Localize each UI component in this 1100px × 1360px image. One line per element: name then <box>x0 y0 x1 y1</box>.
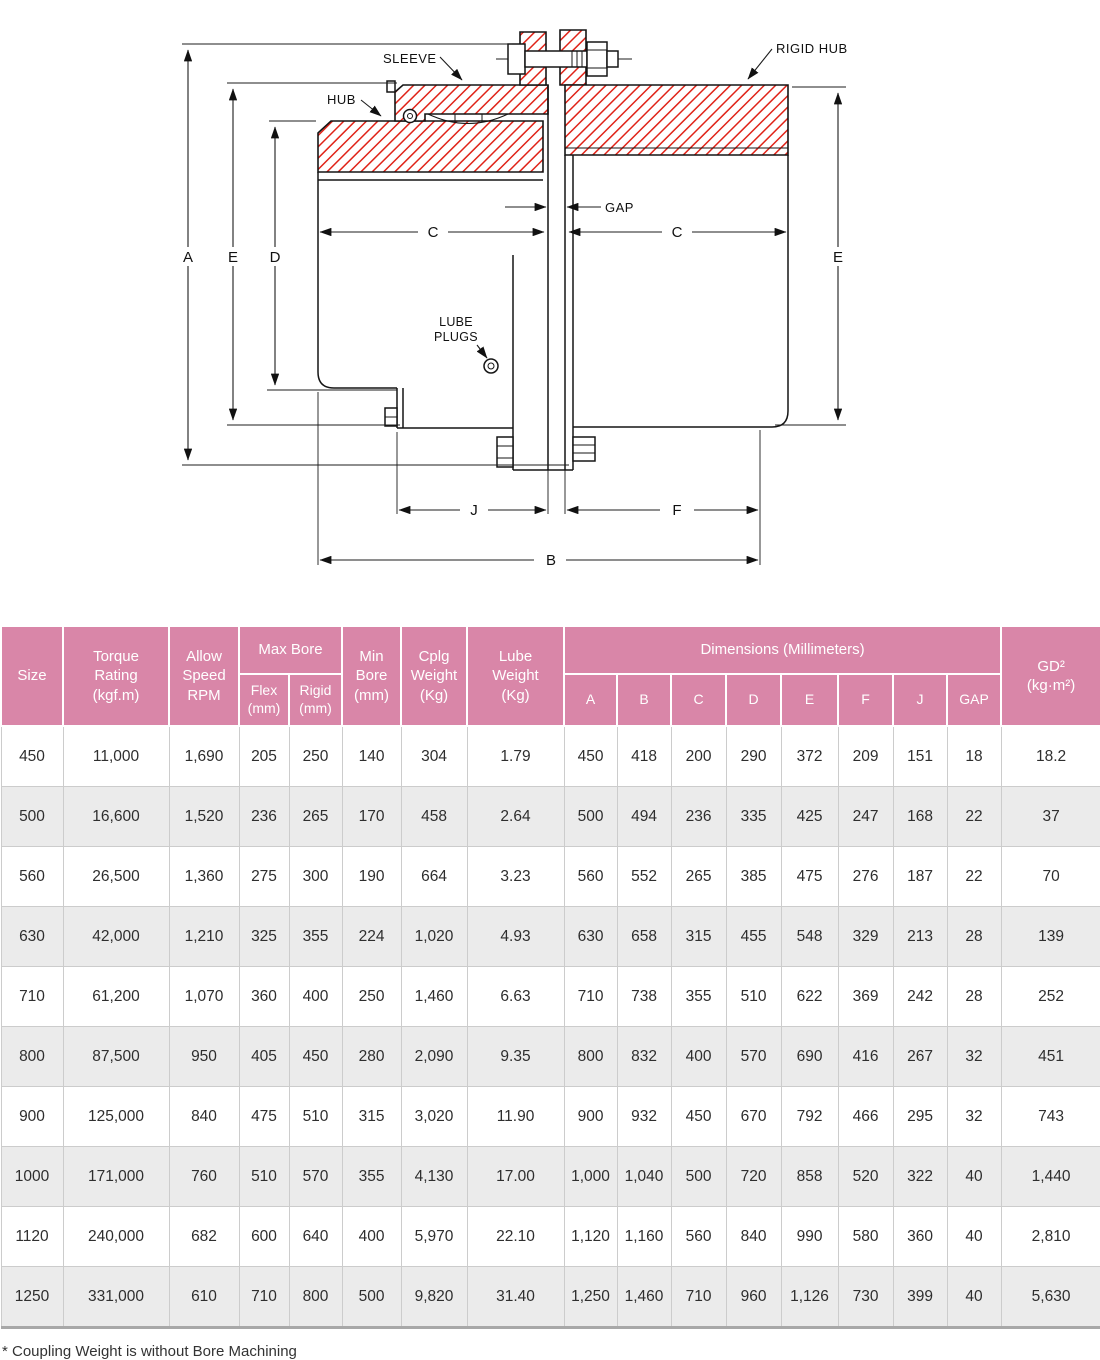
table-cell: 1,460 <box>401 967 467 1027</box>
table-cell: 510 <box>239 1147 289 1207</box>
table-cell: 252 <box>1001 967 1100 1027</box>
table-cell: 3.23 <box>467 847 564 907</box>
table-cell: 500 <box>1 787 63 847</box>
hub-label: HUB <box>327 92 356 107</box>
table-cell: 1,690 <box>169 726 239 787</box>
table-cell: 670 <box>726 1087 781 1147</box>
dim-label-c-left: C <box>428 224 439 241</box>
col-header-dim-c: C <box>671 674 726 726</box>
dim-label-d: D <box>270 249 281 266</box>
table-cell: 295 <box>893 1087 947 1147</box>
table-cell: 276 <box>838 847 893 907</box>
table-cell: 932 <box>617 1087 671 1147</box>
table-cell: 1,000 <box>564 1147 617 1207</box>
table-cell: 168 <box>893 787 947 847</box>
table-cell: 560 <box>671 1207 726 1267</box>
col-header-flex: Flex (mm) <box>239 674 289 726</box>
table-cell: 61,200 <box>63 967 169 1027</box>
table-cell: 22.10 <box>467 1207 564 1267</box>
table-cell: 171,000 <box>63 1147 169 1207</box>
table-cell: 710 <box>671 1267 726 1328</box>
table-cell: 900 <box>1 1087 63 1147</box>
table-cell: 242 <box>893 967 947 1027</box>
table-cell: 832 <box>617 1027 671 1087</box>
table-row: 1120240,0006826006404005,97022.101,1201,… <box>1 1207 1100 1267</box>
table-cell: 792 <box>781 1087 838 1147</box>
bolt-nut <box>587 42 607 76</box>
coupling-cross-section-diagram: A E D E C C J F B SLEEVE HUB RIGID HUB G… <box>0 0 1100 615</box>
col-header-torque: Torque Rating (kgf.m) <box>63 626 169 726</box>
table-cell: 18.2 <box>1001 726 1100 787</box>
table-cell: 1120 <box>1 1207 63 1267</box>
table-cell: 475 <box>781 847 838 907</box>
table-cell: 1,040 <box>617 1147 671 1207</box>
table-cell: 630 <box>564 907 617 967</box>
table-cell: 900 <box>564 1087 617 1147</box>
table-cell: 800 <box>289 1267 342 1328</box>
table-cell: 1,360 <box>169 847 239 907</box>
table-cell: 710 <box>564 967 617 1027</box>
table-cell: 1,440 <box>1001 1147 1100 1207</box>
sleeve-label: SLEEVE <box>383 51 437 66</box>
table-cell: 329 <box>838 907 893 967</box>
table-cell: 32 <box>947 1087 1001 1147</box>
table-cell: 548 <box>781 907 838 967</box>
table-cell: 200 <box>671 726 726 787</box>
table-cell: 720 <box>726 1147 781 1207</box>
table-cell: 1250 <box>1 1267 63 1328</box>
table-cell: 6.63 <box>467 967 564 1027</box>
table-row: 63042,0001,2103253552241,0204.9363065831… <box>1 907 1100 967</box>
table-cell: 1.79 <box>467 726 564 787</box>
dim-label-e-left: E <box>228 249 238 266</box>
table-cell: 800 <box>1 1027 63 1087</box>
col-header-dim-f: F <box>838 674 893 726</box>
table-cell: 738 <box>617 967 671 1027</box>
table-cell: 743 <box>1001 1087 1100 1147</box>
table-cell: 26,500 <box>63 847 169 907</box>
table-cell: 187 <box>893 847 947 907</box>
table-cell: 140 <box>342 726 401 787</box>
table-cell: 139 <box>1001 907 1100 967</box>
table-cell: 40 <box>947 1147 1001 1207</box>
table-cell: 240,000 <box>63 1207 169 1267</box>
table-cell: 418 <box>617 726 671 787</box>
table-cell: 28 <box>947 907 1001 967</box>
table-cell: 1000 <box>1 1147 63 1207</box>
table-cell: 458 <box>401 787 467 847</box>
table-cell: 450 <box>1 726 63 787</box>
table-cell: 520 <box>838 1147 893 1207</box>
table-cell: 1,160 <box>617 1207 671 1267</box>
sleeve-section <box>387 81 548 124</box>
table-cell: 1,210 <box>169 907 239 967</box>
table-cell: 16,600 <box>63 787 169 847</box>
dim-label-j: J <box>470 502 478 519</box>
table-cell: 267 <box>893 1027 947 1087</box>
table-row: 1250331,0006107108005009,82031.401,2501,… <box>1 1267 1100 1328</box>
table-cell: 331,000 <box>63 1267 169 1328</box>
table-cell: 355 <box>289 907 342 967</box>
table-cell: 840 <box>726 1207 781 1267</box>
table-cell: 42,000 <box>63 907 169 967</box>
table-cell: 236 <box>671 787 726 847</box>
table-row: 80087,5009504054502802,0909.358008324005… <box>1 1027 1100 1087</box>
table-cell: 11,000 <box>63 726 169 787</box>
dim-label-c-right: C <box>672 224 683 241</box>
col-header-dim-e: E <box>781 674 838 726</box>
table-cell: 9,820 <box>401 1267 467 1328</box>
table-cell: 265 <box>289 787 342 847</box>
table-cell: 275 <box>239 847 289 907</box>
table-cell: 4,130 <box>401 1147 467 1207</box>
table-cell: 500 <box>671 1147 726 1207</box>
rigid-hub-label: RIGID HUB <box>776 41 848 56</box>
table-cell: 250 <box>342 967 401 1027</box>
table-cell: 5,630 <box>1001 1267 1100 1328</box>
table-cell: 40 <box>947 1207 1001 1267</box>
spec-table-body: 45011,0001,6902052501403041.794504182002… <box>1 726 1100 1328</box>
lube-plugs-label-line1: LUBE <box>439 315 473 329</box>
table-cell: 1,120 <box>564 1207 617 1267</box>
dim-label-e-right: E <box>833 249 843 266</box>
table-cell: 858 <box>781 1147 838 1207</box>
table-cell: 1,126 <box>781 1267 838 1328</box>
col-header-min-bore: Min Bore (mm) <box>342 626 401 726</box>
table-cell: 125,000 <box>63 1087 169 1147</box>
table-cell: 510 <box>726 967 781 1027</box>
table-cell: 950 <box>169 1027 239 1087</box>
table-cell: 236 <box>239 787 289 847</box>
table-row: 900125,0008404755103153,02011.9090093245… <box>1 1087 1100 1147</box>
table-cell: 304 <box>401 726 467 787</box>
table-cell: 11.90 <box>467 1087 564 1147</box>
table-cell: 664 <box>401 847 467 907</box>
table-cell: 560 <box>1 847 63 907</box>
table-cell: 450 <box>289 1027 342 1087</box>
table-cell: 580 <box>838 1207 893 1267</box>
table-cell: 2,810 <box>1001 1207 1100 1267</box>
table-cell: 315 <box>342 1087 401 1147</box>
table-cell: 37 <box>1001 787 1100 847</box>
table-cell: 840 <box>169 1087 239 1147</box>
table-cell: 2,090 <box>401 1027 467 1087</box>
table-cell: 18 <box>947 726 1001 787</box>
col-header-dim-a: A <box>564 674 617 726</box>
table-cell: 209 <box>838 726 893 787</box>
table-cell: 399 <box>893 1267 947 1328</box>
table-cell: 151 <box>893 726 947 787</box>
table-cell: 224 <box>342 907 401 967</box>
table-cell: 610 <box>169 1267 239 1328</box>
table-cell: 22 <box>947 787 1001 847</box>
table-cell: 372 <box>781 726 838 787</box>
table-cell: 450 <box>564 726 617 787</box>
table-cell: 552 <box>617 847 671 907</box>
table-cell: 400 <box>671 1027 726 1087</box>
col-header-rigid: Rigid (mm) <box>289 674 342 726</box>
bolt-shank <box>525 51 587 67</box>
table-cell: 300 <box>289 847 342 907</box>
table-cell: 265 <box>671 847 726 907</box>
table-cell: 247 <box>838 787 893 847</box>
col-header-dimensions: Dimensions (Millimeters) <box>564 626 1001 674</box>
col-header-dim-j: J <box>893 674 947 726</box>
table-cell: 710 <box>239 1267 289 1328</box>
table-cell: 40 <box>947 1267 1001 1328</box>
flange-bolt-assembly <box>496 30 632 85</box>
dim-label-a: A <box>183 249 193 266</box>
table-cell: 455 <box>726 907 781 967</box>
table-cell: 510 <box>289 1087 342 1147</box>
table-cell: 405 <box>239 1027 289 1087</box>
table-cell: 475 <box>239 1087 289 1147</box>
table-cell: 325 <box>239 907 289 967</box>
table-cell: 960 <box>726 1267 781 1328</box>
table-cell: 570 <box>289 1147 342 1207</box>
table-cell: 690 <box>781 1027 838 1087</box>
table-cell: 710 <box>1 967 63 1027</box>
table-cell: 280 <box>342 1027 401 1087</box>
table-row: 45011,0001,6902052501403041.794504182002… <box>1 726 1100 787</box>
table-cell: 87,500 <box>63 1027 169 1087</box>
bolt-head <box>508 44 525 74</box>
table-row: 50016,6001,5202362651704582.645004942363… <box>1 787 1100 847</box>
table-cell: 213 <box>893 907 947 967</box>
table-cell: 170 <box>342 787 401 847</box>
flex-hub-section <box>318 121 543 428</box>
table-cell: 416 <box>838 1027 893 1087</box>
table-cell: 290 <box>726 726 781 787</box>
table-cell: 22 <box>947 847 1001 907</box>
table-cell: 4.93 <box>467 907 564 967</box>
table-cell: 9.35 <box>467 1027 564 1087</box>
lube-plugs-label-line2: PLUGS <box>434 330 478 344</box>
table-cell: 450 <box>671 1087 726 1147</box>
table-cell: 360 <box>239 967 289 1027</box>
table-cell: 31.40 <box>467 1267 564 1328</box>
table-cell: 494 <box>617 787 671 847</box>
col-header-size: Size <box>1 626 63 726</box>
table-cell: 315 <box>671 907 726 967</box>
table-cell: 570 <box>726 1027 781 1087</box>
table-cell: 70 <box>1001 847 1100 907</box>
table-cell: 466 <box>838 1087 893 1147</box>
table-cell: 990 <box>781 1207 838 1267</box>
table-cell: 1,020 <box>401 907 467 967</box>
table-cell: 1,070 <box>169 967 239 1027</box>
table-cell: 190 <box>342 847 401 907</box>
table-cell: 800 <box>564 1027 617 1087</box>
table-cell: 622 <box>781 967 838 1027</box>
table-row: 71061,2001,0703604002501,4606.6371073835… <box>1 967 1100 1027</box>
table-cell: 630 <box>1 907 63 967</box>
col-header-gd2: GD² (kg·m²) <box>1001 626 1100 726</box>
table-cell: 760 <box>169 1147 239 1207</box>
table-cell: 600 <box>239 1207 289 1267</box>
table-cell: 385 <box>726 847 781 907</box>
table-cell: 355 <box>342 1147 401 1207</box>
table-cell: 560 <box>564 847 617 907</box>
rigid-hub-section <box>565 85 788 427</box>
table-cell: 28 <box>947 967 1001 1027</box>
table-cell: 205 <box>239 726 289 787</box>
table-cell: 17.00 <box>467 1147 564 1207</box>
table-row: 56026,5001,3602753001906643.235605522653… <box>1 847 1100 907</box>
col-header-max-bore: Max Bore <box>239 626 342 674</box>
col-header-allow-speed: Allow Speed RPM <box>169 626 239 726</box>
table-cell: 5,970 <box>401 1207 467 1267</box>
table-cell: 1,520 <box>169 787 239 847</box>
table-cell: 500 <box>564 787 617 847</box>
col-header-lube-weight: Lube Weight (Kg) <box>467 626 564 726</box>
lube-plug <box>484 359 498 373</box>
footnote: * Coupling Weight is without Bore Machin… <box>2 1343 1100 1360</box>
spec-table: Size Torque Rating (kgf.m) Allow Speed R… <box>0 625 1100 1329</box>
table-cell: 1,250 <box>564 1267 617 1328</box>
coupling-diagram-svg: A E D E C C J F B SLEEVE HUB RIGID HUB G… <box>0 0 1100 615</box>
table-cell: 658 <box>617 907 671 967</box>
table-cell: 335 <box>726 787 781 847</box>
table-cell: 32 <box>947 1027 1001 1087</box>
table-cell: 682 <box>169 1207 239 1267</box>
col-header-dim-b: B <box>617 674 671 726</box>
table-cell: 2.64 <box>467 787 564 847</box>
table-cell: 322 <box>893 1147 947 1207</box>
table-cell: 451 <box>1001 1027 1100 1087</box>
table-cell: 3,020 <box>401 1087 467 1147</box>
dim-label-b: B <box>546 552 556 569</box>
table-cell: 400 <box>289 967 342 1027</box>
table-row: 1000171,0007605105703554,13017.001,0001,… <box>1 1147 1100 1207</box>
table-cell: 369 <box>838 967 893 1027</box>
table-cell: 360 <box>893 1207 947 1267</box>
table-cell: 730 <box>838 1267 893 1328</box>
table-cell: 355 <box>671 967 726 1027</box>
table-cell: 500 <box>342 1267 401 1328</box>
col-header-cplg-weight: Cplg Weight (Kg) <box>401 626 467 726</box>
table-cell: 250 <box>289 726 342 787</box>
table-cell: 1,460 <box>617 1267 671 1328</box>
col-header-dim-d: D <box>726 674 781 726</box>
table-cell: 400 <box>342 1207 401 1267</box>
table-cell: 640 <box>289 1207 342 1267</box>
col-header-dim-gap: GAP <box>947 674 1001 726</box>
dim-label-f: F <box>672 502 681 519</box>
gap-label: GAP <box>605 200 634 215</box>
table-cell: 425 <box>781 787 838 847</box>
